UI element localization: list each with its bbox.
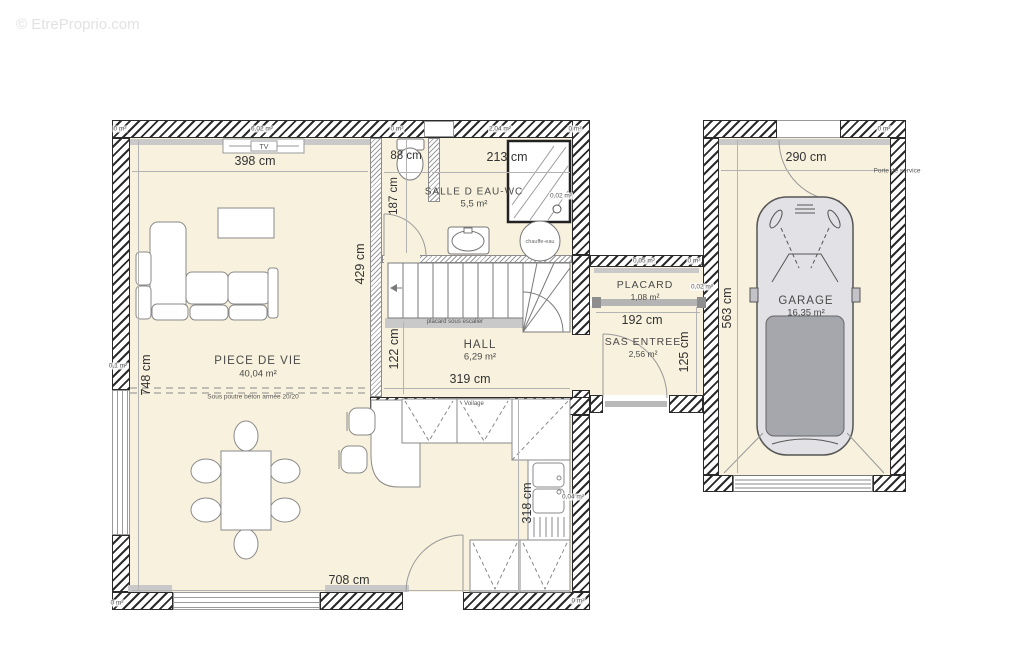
furniture-layer: TV: [0, 0, 1024, 661]
area-mark: 0,1 m²: [108, 363, 128, 370]
dimline-sas-height: [696, 307, 697, 393]
car-mirror: [750, 288, 758, 302]
floorplan-canvas: © EtreProprio.com EtreProprio.com: [0, 0, 1024, 661]
door-arc-living: [406, 535, 463, 592]
car-roof: [766, 316, 844, 436]
area-mark: 0 m²: [390, 126, 405, 133]
coffee-table: [218, 208, 274, 238]
car-mirror: [852, 288, 860, 302]
room-label-salle-eau: SALLE D EAU-WC: [425, 187, 523, 198]
area-mark: 0 m²: [571, 598, 586, 605]
room-area-sas: 2,56 m²: [629, 349, 658, 359]
car: [750, 197, 860, 455]
area-mark: 0 m²: [568, 126, 583, 133]
room-label-piece-de-vie: PIECE DE VIE: [214, 355, 301, 367]
dimline-hall-left: [403, 322, 404, 394]
kitchen-units: [402, 399, 570, 592]
area-mark: 6,02 m²: [250, 126, 274, 133]
beam-line: [130, 388, 370, 393]
dim-bath-left: 88 cm: [390, 150, 421, 162]
dim-bath-height: 187 cm: [388, 177, 400, 215]
under-stairs-label: placard sous escalier: [427, 319, 483, 325]
dining-table: [221, 451, 271, 530]
shower-drain: [553, 205, 561, 213]
dim-garage-height: 563 cm: [720, 288, 734, 329]
room-label-garage: GARAGE: [778, 295, 833, 307]
glazing-label: Voilage: [464, 401, 484, 407]
dining-chair: [234, 421, 258, 451]
room-area-hall: 6,29 m²: [464, 352, 496, 363]
dimline-bath-right: [432, 172, 570, 173]
dimline-kitchen-height: [518, 400, 519, 590]
room-area-piece-de-vie: 40,04 m²: [239, 369, 277, 380]
water-heater-label: chauffe-eau: [526, 239, 555, 245]
area-mark: 0,02 m²: [549, 193, 573, 200]
dim-living-height: 748 cm: [139, 355, 153, 396]
room-label-hall: HALL: [464, 339, 497, 351]
tv-stand: TV: [223, 139, 304, 153]
service-door-label: Porte de service: [874, 168, 921, 175]
dim-placard-width: 192 cm: [622, 313, 663, 327]
dining-chair: [191, 459, 221, 483]
room-area-garage: 16,35 m²: [787, 308, 825, 319]
room-area-placard: 1,08 m²: [631, 292, 660, 302]
tv-label: TV: [260, 144, 269, 151]
desk-chair: [341, 446, 367, 473]
dim-kitchen-height: 318 cm: [520, 483, 534, 524]
dining-set: [191, 421, 300, 559]
dimline-living-top: [132, 171, 368, 172]
dining-chair: [191, 498, 221, 522]
dim-bath-right: 213 cm: [487, 150, 528, 164]
area-mark: 0 m²: [113, 126, 128, 133]
area-mark: 0 m²: [110, 600, 125, 607]
dim-living-top: 398 cm: [235, 154, 276, 168]
desk-chair: [349, 408, 375, 435]
area-mark: 0 m²: [877, 126, 892, 133]
area-mark: 0,04 m²: [561, 494, 585, 501]
beam-label: Sous poutre béton armée 20/20: [205, 394, 300, 401]
dim-hall-left: 122 cm: [387, 329, 401, 370]
washbasin: [452, 231, 484, 251]
area-mark: 2,04 m²: [488, 126, 512, 133]
dim-hall-width: 319 cm: [450, 372, 491, 386]
dining-chair: [270, 498, 300, 522]
dining-chair: [234, 529, 258, 559]
area-mark: 0,05 m²: [632, 258, 656, 265]
dim-living-right: 429 cm: [353, 244, 367, 285]
dimline-garage-height: [737, 140, 738, 473]
room-area-salle-eau: 5,5 m²: [461, 199, 488, 210]
area-mark: 0,02 m²: [690, 284, 714, 291]
dim-garage-width: 290 cm: [786, 150, 827, 164]
room-label-sas: SAS ENTREE: [605, 336, 682, 348]
kitchen-sink: [533, 463, 564, 487]
area-mark: 0 m²: [687, 258, 702, 265]
dimline-garage-width: [721, 170, 888, 171]
dining-chair: [270, 459, 300, 483]
dimline-living-bottom: [132, 590, 570, 591]
dimline-hall-width: [384, 388, 570, 389]
room-label-placard: PLACARD: [617, 279, 674, 291]
door-arc-bathroom: [384, 214, 426, 256]
dim-living-bottom: 708 cm: [329, 573, 370, 587]
